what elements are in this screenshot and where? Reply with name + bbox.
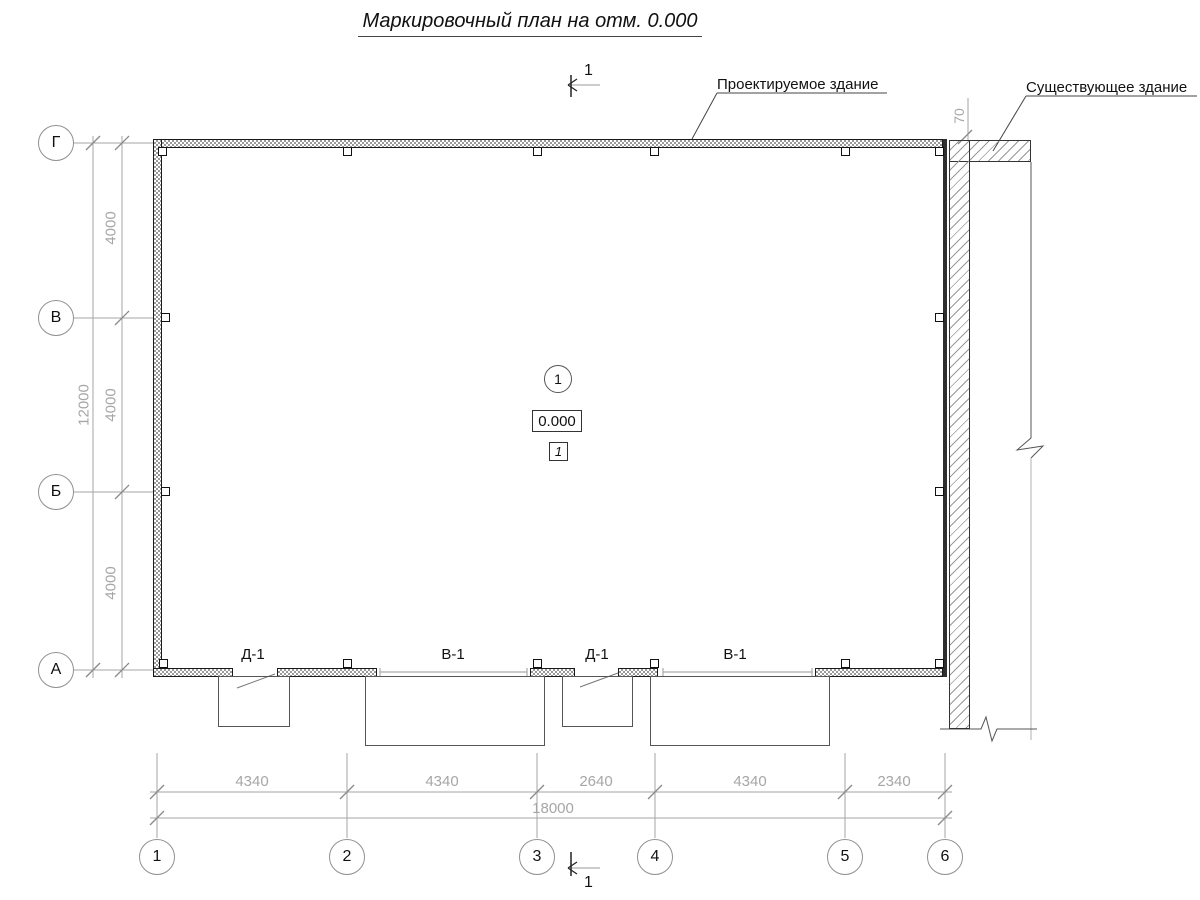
dim-building-gap: 70 bbox=[951, 108, 967, 124]
row-axis-bubble-b: Б bbox=[38, 474, 74, 510]
door-porch-1 bbox=[218, 676, 290, 727]
bottom-dimension-lines bbox=[150, 98, 968, 838]
bottom-wall-segment-2 bbox=[277, 668, 377, 677]
column-axis-bubble-4: 4 bbox=[637, 839, 673, 875]
section-mark-bottom bbox=[568, 852, 600, 876]
column-marker bbox=[533, 659, 542, 668]
column-marker bbox=[161, 313, 170, 322]
dim-bottom-segment-5: 2340 bbox=[877, 773, 910, 790]
column-marker bbox=[841, 659, 850, 668]
linework-layer bbox=[0, 0, 1200, 900]
column-marker bbox=[343, 659, 352, 668]
door-porch-2 bbox=[562, 676, 633, 727]
dim-bottom-segment-2: 4340 bbox=[425, 773, 458, 790]
drawing-title: Маркировочный план на отм. 0.000 bbox=[358, 10, 701, 37]
section-number-top: 1 bbox=[584, 62, 593, 80]
column-marker bbox=[935, 487, 944, 496]
section-number-bottom: 1 bbox=[584, 874, 593, 892]
column-axis-bubble-3: 3 bbox=[519, 839, 555, 875]
existing-building-label: Существующее здание bbox=[1026, 79, 1187, 96]
dim-bottom-total: 18000 bbox=[532, 800, 574, 817]
column-marker bbox=[650, 659, 659, 668]
column-marker bbox=[841, 147, 850, 156]
projected-building-label: Проектируемое здание bbox=[717, 76, 878, 93]
bottom-wall-segment-5 bbox=[815, 668, 943, 677]
column-marker bbox=[935, 313, 944, 322]
column-axis-bubble-1: 1 bbox=[139, 839, 175, 875]
top-wall bbox=[153, 139, 943, 148]
gate-apron-2 bbox=[650, 676, 830, 746]
dim-left-total: 12000 bbox=[76, 384, 93, 426]
door-label-1: Д-1 bbox=[241, 646, 265, 663]
column-marker bbox=[343, 147, 352, 156]
elevation-mark: 0.000 bbox=[532, 410, 582, 432]
door-label-2: Д-1 bbox=[585, 646, 609, 663]
left-wall bbox=[153, 139, 162, 677]
right-wall bbox=[943, 139, 947, 677]
dim-left-segment-1: 4000 bbox=[103, 211, 120, 244]
column-marker bbox=[650, 147, 659, 156]
dim-left-segment-3: 4000 bbox=[103, 566, 120, 599]
column-axis-bubble-2: 2 bbox=[329, 839, 365, 875]
column-axis-bubble-5: 5 bbox=[827, 839, 863, 875]
dim-bottom-segment-4: 4340 bbox=[733, 773, 766, 790]
row-axis-bubble-a: А bbox=[38, 652, 74, 688]
gate-apron-1 bbox=[365, 676, 545, 746]
column-marker bbox=[158, 147, 167, 156]
room-number-box: 1 bbox=[549, 442, 568, 461]
dim-left-segment-2: 4000 bbox=[103, 388, 120, 421]
room-axis-bubble: 1 bbox=[544, 365, 572, 393]
column-axis-bubble-6: 6 bbox=[927, 839, 963, 875]
drawing-title-wrap: Маркировочный план на отм. 0.000 bbox=[0, 10, 1060, 37]
gate-label-2: В-1 bbox=[723, 646, 746, 663]
row-axis-bubble-g: Г bbox=[38, 125, 74, 161]
dim-bottom-segment-1: 4340 bbox=[235, 773, 268, 790]
column-marker bbox=[159, 659, 168, 668]
column-marker bbox=[935, 659, 944, 668]
floor-plan-drawing: Маркировочный план на отм. 0.000 Г В Б А… bbox=[0, 0, 1200, 900]
column-marker bbox=[533, 147, 542, 156]
gate-label-1: В-1 bbox=[441, 646, 464, 663]
existing-building-side-wall bbox=[949, 140, 970, 729]
column-marker bbox=[935, 147, 944, 156]
dim-bottom-segment-3: 2640 bbox=[579, 773, 612, 790]
column-marker bbox=[161, 487, 170, 496]
row-axis-bubble-v: В bbox=[38, 300, 74, 336]
